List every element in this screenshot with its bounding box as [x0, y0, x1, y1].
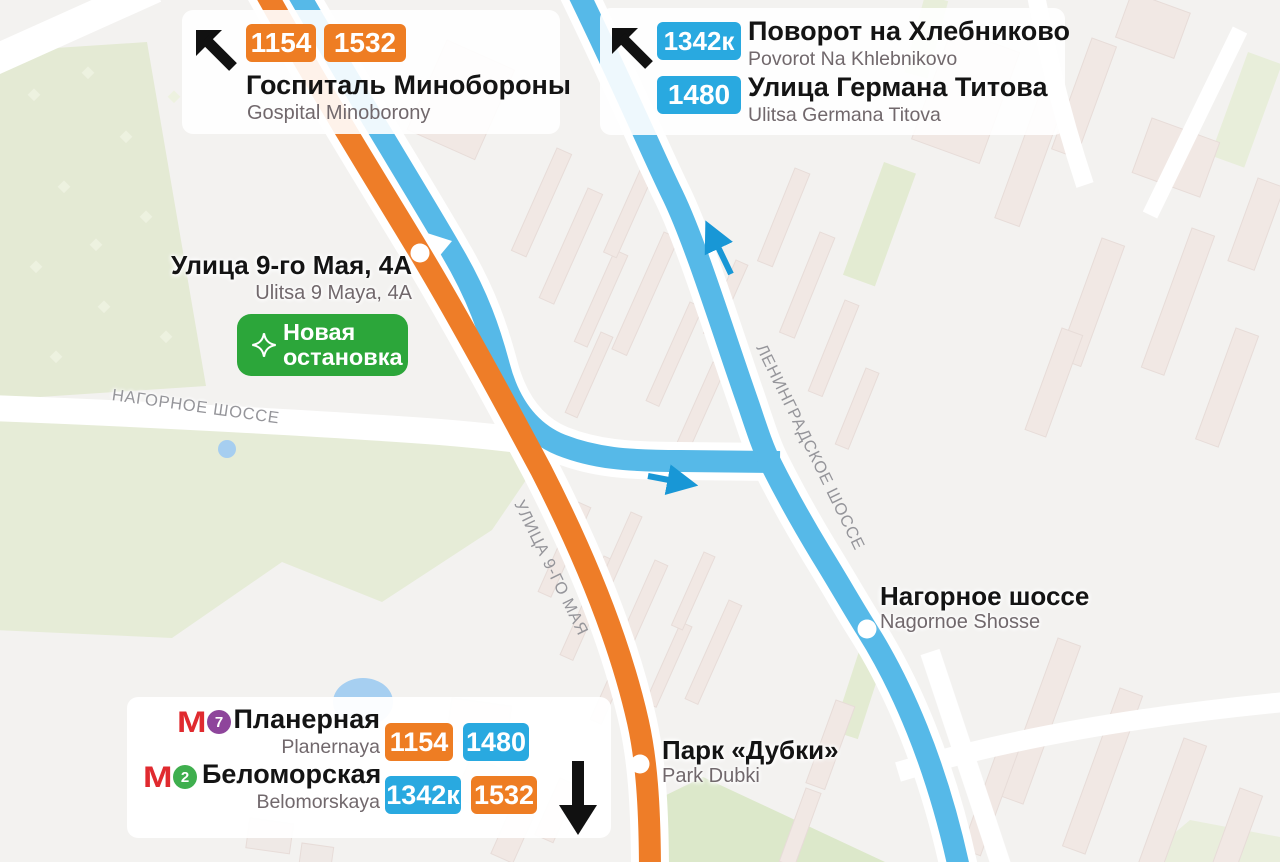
arrow-up-left-icon	[608, 24, 656, 72]
sign-row-subtitle: Povorot Na Khlebnikovo	[748, 48, 957, 71]
route-badge-1154: 1154	[246, 24, 316, 62]
metro-logo-icon: М	[177, 708, 207, 738]
stop-title-park-dubki: Парк «Дубки»	[662, 735, 839, 766]
sign-row-title: Улица Германа Титова	[748, 72, 1048, 103]
sparkle-icon	[250, 331, 278, 359]
metro-station-belomorskaya: Беломорская Belomorskaya	[202, 758, 380, 814]
metro-panel: М 7 Планерная Planernaya 1154 1480 М 2 Б…	[127, 697, 611, 838]
metro-station-name-latin: Planernaya	[230, 735, 380, 759]
metro-station-name: Беломорская	[202, 758, 380, 790]
route-badge-1532: 1532	[471, 776, 537, 814]
metro-station-name: Планерная	[230, 703, 380, 735]
new-stop-badge-line2: остановка	[283, 344, 403, 370]
stop-dot-new-stop	[411, 244, 430, 263]
metro-station-planernaya: Планерная Planernaya	[230, 703, 380, 759]
new-stop-badge: Новая остановка	[237, 314, 408, 376]
sign-subtitle: Gospital Minoborony	[247, 102, 430, 125]
stop-dot-nagornoe	[858, 620, 877, 639]
new-stop-badge-line1: Новая	[283, 319, 355, 345]
stop-subtitle-park-dubki: Park Dubki	[662, 765, 760, 788]
metro-line-2-badge: 2	[173, 765, 197, 789]
route-badge-1532: 1532	[324, 24, 406, 62]
sign-gospital: 1154 1532 Госпиталь Минобороны Gospital …	[182, 10, 560, 134]
route-badge-1480: 1480	[657, 76, 741, 114]
sign-title: Госпиталь Минобороны	[246, 70, 571, 101]
metro-station-name-latin: Belomorskaya	[202, 790, 380, 814]
stop-dot-park-dubki	[631, 755, 650, 774]
stop-subtitle-nagornoe: Nagornoe Shosse	[880, 611, 1040, 634]
route-badge-1342k: 1342к	[657, 22, 741, 60]
route-badge-1342k: 1342к	[385, 776, 461, 814]
map-canvas: НАГОРНОЕ ШОССЕ УЛИЦА 9-ГО МАЯ ЛЕНИНГРАДС…	[0, 0, 1280, 862]
arrow-down-icon	[555, 759, 601, 839]
sign-row-title: Поворот на Хлебниково	[748, 16, 1070, 47]
stop-title-ulitsa-9-maya: Улица 9-го Мая, 4А	[150, 250, 412, 281]
sign-row-subtitle: Ulitsa Germana Titova	[748, 104, 941, 127]
route-badge-1480: 1480	[463, 723, 529, 761]
stop-subtitle-ulitsa-9-maya: Ulitsa 9 Maya, 4A	[150, 282, 412, 305]
metro-line-7-badge: 7	[207, 710, 231, 734]
metro-logo-icon: М	[143, 763, 173, 793]
arrow-up-left-icon	[192, 26, 240, 74]
stop-title-nagornoe: Нагорное шоссе	[880, 581, 1089, 612]
sign-leningradskoe: 1342к Поворот на Хлебниково Povorot Na K…	[600, 8, 1065, 135]
route-badge-1154: 1154	[385, 723, 453, 761]
